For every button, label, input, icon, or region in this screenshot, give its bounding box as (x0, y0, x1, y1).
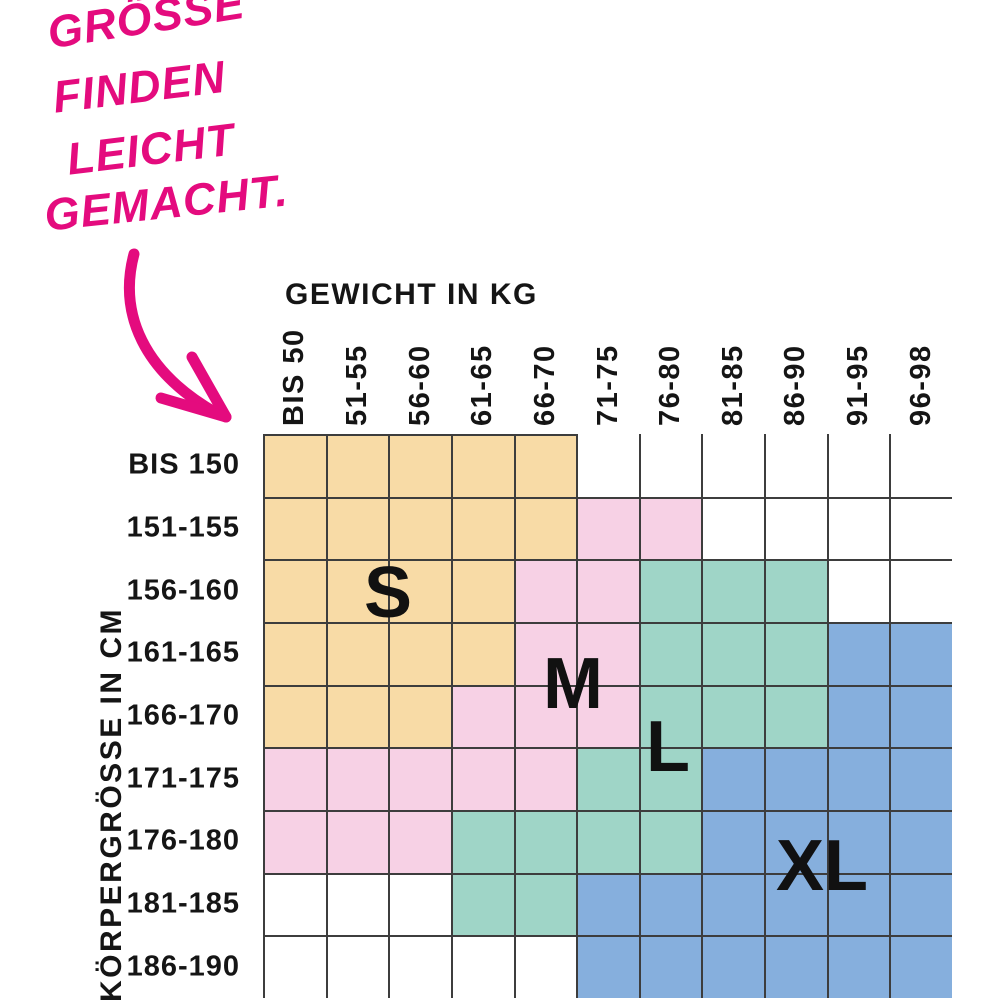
size-cell (639, 497, 702, 560)
size-cell (827, 685, 890, 748)
size-cell (514, 434, 577, 497)
size-cell (764, 434, 827, 497)
col-label-66-70: 66-70 (528, 344, 562, 426)
size-cell (639, 873, 702, 936)
size-cell (701, 685, 764, 748)
size-cell (451, 559, 514, 622)
size-cell (764, 497, 827, 560)
size-cell (326, 747, 389, 810)
size-cell (388, 434, 451, 497)
row-label-bis-150: BIS 150 (0, 449, 240, 482)
size-cell (889, 935, 952, 998)
col-label-76-80: 76-80 (653, 344, 687, 426)
size-cell (514, 497, 577, 560)
size-cell (263, 622, 326, 685)
size-cell (576, 559, 639, 622)
size-cell (701, 434, 764, 497)
size-cell (701, 497, 764, 560)
size-cell (514, 559, 577, 622)
size-cell (764, 935, 827, 998)
size-cell (889, 747, 952, 810)
size-cell (639, 935, 702, 998)
col-label-bis-50: BIS 50 (277, 328, 311, 426)
size-cell (326, 685, 389, 748)
size-cell (326, 935, 389, 998)
size-cell (263, 935, 326, 998)
size-cell (576, 747, 639, 810)
col-label-96-98: 96-98 (904, 344, 938, 426)
size-cell (639, 810, 702, 873)
size-cell (764, 622, 827, 685)
size-cell (764, 685, 827, 748)
size-chart-infographic: GRÖSSEFINDENLEICHTGEMACHT. GEWICHT IN KG… (0, 0, 1000, 1000)
size-cell (764, 559, 827, 622)
size-cell (827, 559, 890, 622)
size-cell (701, 622, 764, 685)
size-cell (576, 497, 639, 560)
size-cell (576, 873, 639, 936)
row-label-176-180: 176-180 (0, 825, 240, 858)
size-cell (576, 810, 639, 873)
size-cell (827, 434, 890, 497)
size-cell (514, 747, 577, 810)
size-grid (263, 434, 952, 998)
size-cell (889, 810, 952, 873)
size-cell (388, 873, 451, 936)
size-letter-l: L (646, 706, 690, 788)
col-label-61-65: 61-65 (465, 344, 499, 426)
size-cell (701, 747, 764, 810)
col-label-56-60: 56-60 (403, 344, 437, 426)
size-cell (889, 434, 952, 497)
size-cell (889, 873, 952, 936)
size-cell (451, 622, 514, 685)
size-cell (576, 935, 639, 998)
size-letter-xl: XL (776, 825, 868, 907)
size-cell (827, 497, 890, 560)
size-cell (639, 622, 702, 685)
size-cell (263, 434, 326, 497)
size-cell (451, 747, 514, 810)
col-label-91-95: 91-95 (841, 344, 875, 426)
row-label-151-155: 151-155 (0, 512, 240, 545)
row-label-181-185: 181-185 (0, 888, 240, 921)
size-cell (326, 810, 389, 873)
size-cell (639, 559, 702, 622)
size-cell (889, 685, 952, 748)
size-cell (889, 622, 952, 685)
size-cell (451, 434, 514, 497)
size-cell (514, 873, 577, 936)
size-cell (701, 873, 764, 936)
size-cell (326, 497, 389, 560)
size-cell (451, 497, 514, 560)
size-cell (451, 935, 514, 998)
size-cell (827, 747, 890, 810)
size-letter-m: M (543, 643, 603, 725)
size-cell (764, 747, 827, 810)
size-cell (451, 810, 514, 873)
size-cell (263, 810, 326, 873)
size-cell (889, 559, 952, 622)
size-cell (889, 497, 952, 560)
size-cell (263, 747, 326, 810)
col-label-86-90: 86-90 (778, 344, 812, 426)
size-cell (514, 810, 577, 873)
size-cell (827, 622, 890, 685)
weight-axis-title: GEWICHT IN KG (285, 278, 538, 312)
row-label-171-175: 171-175 (0, 762, 240, 795)
size-cell (576, 434, 639, 497)
size-cell (639, 434, 702, 497)
col-label-71-75: 71-75 (591, 344, 625, 426)
size-cell (326, 434, 389, 497)
size-cell (388, 810, 451, 873)
col-label-51-55: 51-55 (340, 344, 374, 426)
size-cell (451, 685, 514, 748)
col-label-81-85: 81-85 (716, 344, 750, 426)
size-cell (263, 559, 326, 622)
size-cell (388, 685, 451, 748)
size-cell (451, 873, 514, 936)
size-cell (388, 935, 451, 998)
headline-line-1: FINDEN (50, 51, 229, 124)
size-letter-s: S (364, 552, 412, 634)
size-cell (701, 935, 764, 998)
size-cell (263, 873, 326, 936)
size-cell (388, 747, 451, 810)
size-cell (326, 873, 389, 936)
size-cell (827, 935, 890, 998)
row-label-161-165: 161-165 (0, 637, 240, 670)
size-cell (388, 497, 451, 560)
size-cell (514, 935, 577, 998)
size-cell (701, 559, 764, 622)
row-label-156-160: 156-160 (0, 574, 240, 607)
row-label-166-170: 166-170 (0, 700, 240, 733)
row-label-186-190: 186-190 (0, 950, 240, 983)
size-cell (701, 810, 764, 873)
size-cell (263, 685, 326, 748)
size-cell (263, 497, 326, 560)
